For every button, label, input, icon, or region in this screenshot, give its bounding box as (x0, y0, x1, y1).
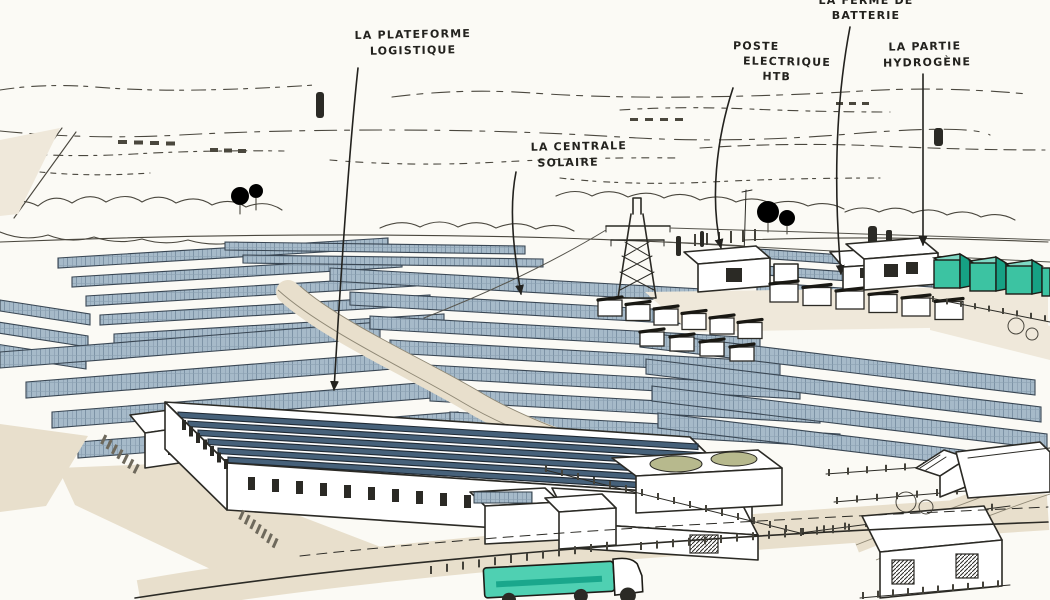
basin (650, 456, 702, 472)
transformer (774, 264, 798, 282)
distant-village (836, 102, 869, 105)
hydrogen-container (934, 254, 970, 288)
hydrogen-container (970, 257, 1006, 291)
barn-door (956, 554, 978, 578)
leader-centrale (512, 172, 521, 294)
distant-village (210, 148, 246, 153)
label-plateforme-line1: LA PLATEFORME (354, 27, 471, 42)
sketch-canvas: LA PLATEFORME LOGISTIQUE LA CENTRALE SOL… (0, 0, 1050, 600)
label-plateforme-logistique: LA PLATEFORME LOGISTIQUE (354, 27, 471, 58)
site-sketch: LA PLATEFORME LOGISTIQUE LA CENTRALE SOL… (0, 0, 1050, 600)
utility-box-panels (474, 492, 532, 503)
label-poste-line3: HTB (762, 70, 791, 83)
hydrogen-door (906, 262, 918, 274)
label-batterie: LA FERME DE BATTERIE (819, 0, 914, 22)
label-batterie-line1: BATTERIE (832, 9, 901, 22)
label-plateforme-line2: LOGISTIQUE (370, 43, 457, 58)
label-hydrogene-line2: HYDROGÈNE (883, 55, 971, 70)
basin (711, 452, 757, 466)
label-centrale-line2: SOLAIRE (537, 156, 598, 170)
barn-door (892, 560, 914, 584)
hydrogen-container (1042, 268, 1050, 296)
distant-village (630, 118, 683, 121)
hydrogen-building (864, 253, 938, 290)
distant-village (118, 140, 175, 146)
outbuilding (956, 442, 1050, 498)
label-centrale-line1: LA CENTRALE (531, 139, 628, 154)
label-poste-line2: ELECTRIQUE (743, 54, 831, 69)
label-poste-line1: POSTE (733, 39, 780, 53)
distant-tree-silhouette (934, 128, 943, 146)
background-landscape (0, 85, 1048, 246)
hydrogen-door (884, 264, 898, 277)
label-partie-hydrogene: LA PARTIE HYDROGÈNE (883, 39, 972, 70)
htb-substation (676, 190, 798, 292)
label-hydrogene-line1: LA PARTIE (888, 39, 961, 53)
leader-batterie (837, 27, 850, 274)
label-centrale-solaire: LA CENTRALE SOLAIRE (531, 139, 628, 170)
label-poste-electrique: POSTE ELECTRIQUE HTB (732, 39, 831, 84)
distant-tree-silhouette (316, 92, 324, 118)
label-batterie-partial-line: LA FERME DE (819, 0, 914, 7)
leader-poste (715, 88, 733, 248)
basin-structure-front (636, 468, 782, 513)
substation-door (726, 268, 742, 282)
hydrogen-container (1006, 260, 1042, 294)
